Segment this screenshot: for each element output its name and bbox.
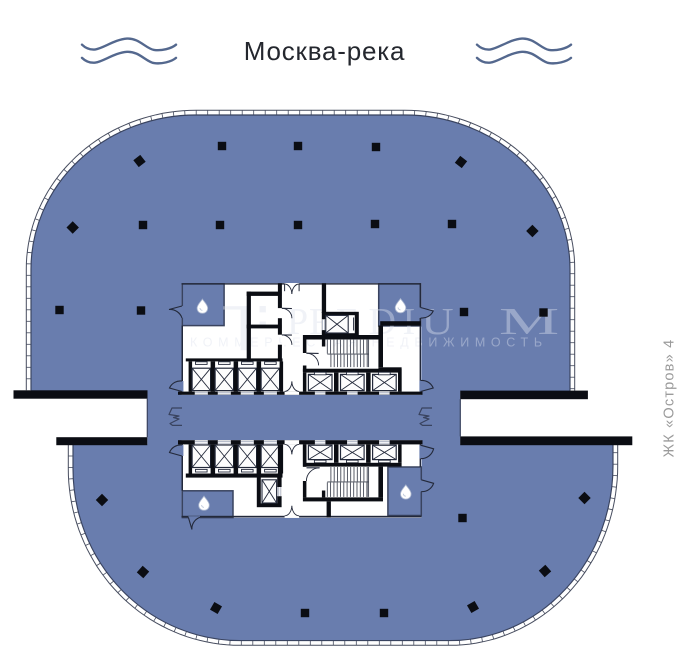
svg-text:ЖК «Остров» 4: ЖК «Остров» 4 xyxy=(662,339,678,458)
svg-text:Москва-река: Москва-река xyxy=(244,36,406,66)
